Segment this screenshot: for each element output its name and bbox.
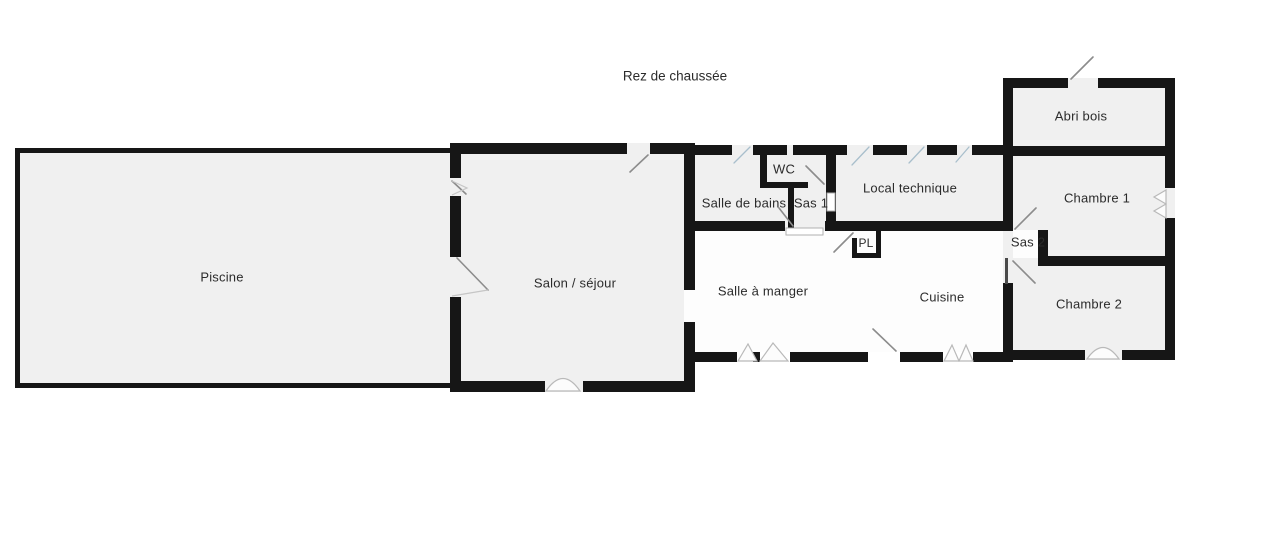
page-title: Rez de chaussée — [623, 69, 727, 84]
wall-segment — [450, 196, 461, 257]
service-band-floor — [684, 145, 1013, 231]
room-label-abri-bois: Abri bois — [1055, 109, 1107, 124]
wall-segment — [873, 145, 907, 155]
room-label-chambre1: Chambre 1 — [1064, 191, 1130, 206]
wall-segment — [1003, 283, 1013, 360]
wall-segment — [1165, 78, 1175, 188]
wall-segment — [825, 221, 1013, 231]
wall-segment — [852, 253, 881, 258]
door-swing — [1071, 57, 1093, 79]
wall-segment — [753, 145, 787, 155]
wall-segment — [900, 352, 943, 362]
wall-segment — [15, 148, 455, 153]
room-label-cuisine: Cuisine — [920, 290, 965, 305]
wall-segment — [450, 143, 461, 178]
wall-segment — [450, 297, 461, 392]
door-leaf — [827, 193, 835, 211]
wall-segment — [684, 221, 785, 231]
door-leaf — [1005, 258, 1008, 284]
room-label-sas1: Sas 1 — [794, 196, 828, 211]
wall-segment — [1042, 256, 1175, 266]
room-label-piscine: Piscine — [200, 270, 243, 285]
wall-segment — [684, 352, 737, 362]
room-label-salle-a-manger: Salle à manger — [718, 284, 808, 299]
wall-segment — [15, 148, 20, 388]
wall-segment — [1165, 218, 1175, 360]
wall-segment — [1003, 146, 1175, 156]
wall-segment — [1122, 350, 1175, 360]
room-label-local-technique: Local technique — [863, 181, 957, 196]
wall-segment — [1003, 350, 1085, 360]
wall-segment — [760, 182, 808, 188]
floor-plan: Rez de chaussée Piscine Salon / séjour S… — [0, 0, 1280, 544]
wall-segment — [1098, 78, 1175, 88]
wall-segment — [583, 381, 695, 392]
room-label-wc: WC — [773, 162, 795, 177]
wall-segment — [15, 383, 455, 388]
room-label-salle-de-bains: Salle de bains — [702, 196, 786, 211]
wall-segment — [450, 143, 627, 154]
wall-segment — [684, 145, 732, 155]
wall-segment — [927, 145, 957, 155]
room-label-chambre2: Chambre 2 — [1056, 297, 1122, 312]
room-label-salon: Salon / séjour — [534, 276, 616, 291]
room-label-pl: PL — [858, 236, 873, 250]
door-leaf — [786, 228, 823, 235]
wall-segment — [790, 352, 868, 362]
room-label-sas2: Sas 2 — [1011, 235, 1045, 250]
salon-floor — [450, 143, 695, 392]
piscine-floor — [15, 148, 455, 388]
wall-segment — [450, 381, 545, 392]
wall-segment — [684, 143, 695, 290]
wall-segment — [793, 145, 847, 155]
room-fills — [15, 78, 1175, 392]
